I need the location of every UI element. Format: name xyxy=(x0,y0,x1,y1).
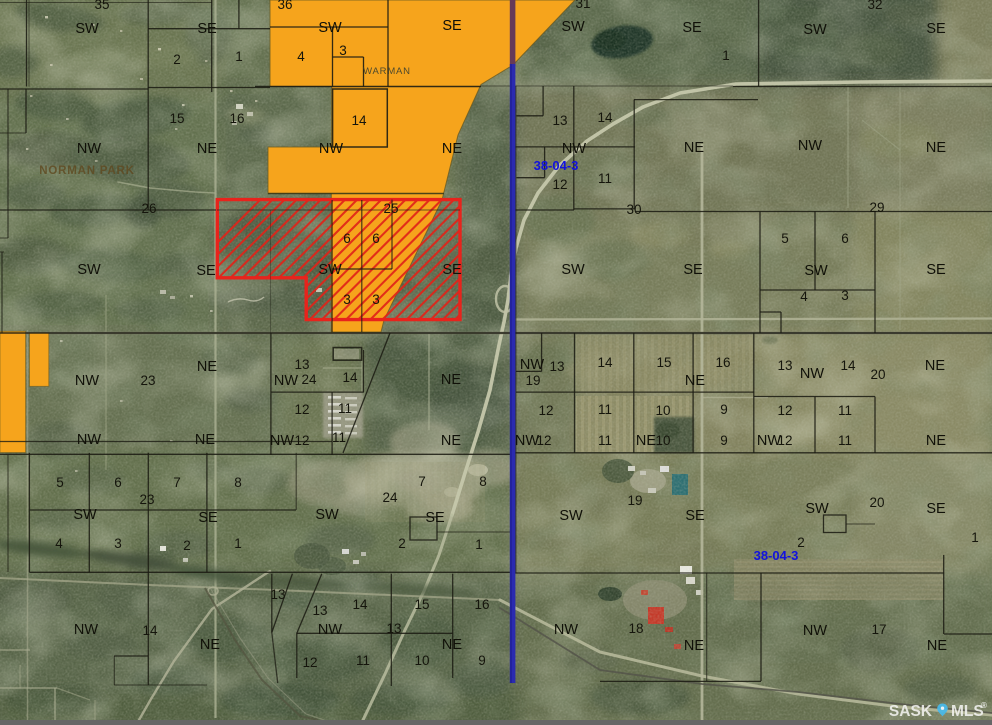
svg-text:NE: NE xyxy=(685,373,705,389)
svg-text:NW: NW xyxy=(270,433,294,449)
svg-text:36: 36 xyxy=(277,0,292,12)
svg-text:SW: SW xyxy=(318,20,342,36)
svg-text:5: 5 xyxy=(781,231,789,246)
svg-text:24: 24 xyxy=(382,490,398,505)
svg-text:6: 6 xyxy=(343,231,351,246)
svg-text:4: 4 xyxy=(800,289,808,304)
svg-text:SE: SE xyxy=(685,508,705,524)
svg-text:6: 6 xyxy=(114,475,122,490)
svg-text:12: 12 xyxy=(294,433,309,448)
svg-text:7: 7 xyxy=(418,474,426,489)
svg-text:1: 1 xyxy=(971,530,979,545)
svg-text:NE: NE xyxy=(441,372,461,388)
svg-text:NE: NE xyxy=(197,359,217,375)
svg-text:WARMAN: WARMAN xyxy=(363,66,411,77)
svg-text:13: 13 xyxy=(777,358,792,373)
svg-text:SE: SE xyxy=(196,263,216,279)
svg-text:6: 6 xyxy=(372,231,380,246)
svg-text:13: 13 xyxy=(270,587,285,602)
svg-text:SW: SW xyxy=(561,19,585,35)
svg-text:38-04-3: 38-04-3 xyxy=(754,548,799,563)
svg-text:11: 11 xyxy=(598,171,612,186)
svg-text:23: 23 xyxy=(140,373,155,388)
svg-text:13: 13 xyxy=(312,603,327,618)
svg-text:18: 18 xyxy=(628,621,643,636)
svg-text:16: 16 xyxy=(474,597,489,612)
svg-text:31: 31 xyxy=(575,0,590,11)
svg-text:12: 12 xyxy=(538,403,553,418)
svg-text:19: 19 xyxy=(525,373,540,388)
svg-text:NE: NE xyxy=(195,432,215,448)
svg-text:14: 14 xyxy=(142,623,158,638)
svg-text:NW: NW xyxy=(803,623,827,639)
svg-text:2: 2 xyxy=(398,536,406,551)
svg-text:SE: SE xyxy=(926,21,946,37)
svg-text:23: 23 xyxy=(139,492,154,507)
svg-text:12: 12 xyxy=(294,402,309,417)
svg-text:29: 29 xyxy=(869,200,884,215)
svg-text:4: 4 xyxy=(55,536,63,551)
svg-text:19: 19 xyxy=(627,493,642,508)
svg-text:12: 12 xyxy=(536,433,551,448)
svg-text:NE: NE xyxy=(684,140,704,156)
svg-text:11: 11 xyxy=(338,401,352,416)
svg-text:14: 14 xyxy=(840,358,856,373)
svg-text:12: 12 xyxy=(777,433,792,448)
svg-text:5: 5 xyxy=(56,475,64,490)
svg-text:NORMAN PARK: NORMAN PARK xyxy=(39,165,134,177)
svg-text:13: 13 xyxy=(549,359,564,374)
svg-text:14: 14 xyxy=(351,113,367,128)
svg-text:NE: NE xyxy=(200,637,220,653)
svg-text:14: 14 xyxy=(597,355,613,370)
svg-text:12: 12 xyxy=(777,403,792,418)
svg-text:NW: NW xyxy=(319,141,343,157)
svg-text:30: 30 xyxy=(626,202,641,217)
svg-text:11: 11 xyxy=(598,433,612,448)
svg-text:2: 2 xyxy=(173,52,181,67)
svg-text:SASK: SASK xyxy=(889,703,933,720)
svg-text:1: 1 xyxy=(235,49,243,64)
svg-text:NW: NW xyxy=(562,141,586,157)
svg-text:1: 1 xyxy=(234,536,242,551)
svg-text:NW: NW xyxy=(74,622,98,638)
svg-text:SE: SE xyxy=(442,18,462,34)
svg-text:4: 4 xyxy=(297,49,305,64)
svg-text:SE: SE xyxy=(198,510,218,526)
svg-text:12: 12 xyxy=(302,655,317,670)
svg-text:SE: SE xyxy=(425,510,445,526)
svg-text:32: 32 xyxy=(867,0,882,12)
svg-text:NW: NW xyxy=(274,373,298,389)
svg-text:NE: NE xyxy=(926,433,946,449)
svg-text:13: 13 xyxy=(294,357,309,372)
svg-text:1: 1 xyxy=(475,537,483,552)
svg-text:NE: NE xyxy=(925,358,945,374)
svg-text:SW: SW xyxy=(561,262,585,278)
svg-text:15: 15 xyxy=(169,111,184,126)
svg-text:16: 16 xyxy=(229,111,244,126)
svg-text:15: 15 xyxy=(414,597,429,612)
svg-text:SW: SW xyxy=(804,263,828,279)
svg-text:NE: NE xyxy=(442,637,462,653)
svg-text:SE: SE xyxy=(926,501,946,517)
svg-text:NW: NW xyxy=(798,138,822,154)
svg-text:12: 12 xyxy=(552,177,567,192)
svg-text:3: 3 xyxy=(372,292,380,307)
svg-text:NW: NW xyxy=(318,622,342,638)
svg-text:11: 11 xyxy=(356,653,370,668)
svg-text:SW: SW xyxy=(315,507,339,523)
svg-text:NW: NW xyxy=(520,357,544,373)
svg-text:16: 16 xyxy=(715,355,730,370)
svg-text:SW: SW xyxy=(73,507,97,523)
svg-text:®: ® xyxy=(981,701,987,710)
svg-text:8: 8 xyxy=(234,475,242,490)
svg-text:10: 10 xyxy=(655,403,670,418)
svg-text:15: 15 xyxy=(656,355,671,370)
svg-text:SE: SE xyxy=(197,21,217,37)
svg-text:9: 9 xyxy=(720,433,728,448)
svg-text:SW: SW xyxy=(75,21,99,37)
svg-text:25: 25 xyxy=(383,201,398,216)
svg-text:NW: NW xyxy=(75,373,99,389)
svg-text:NE: NE xyxy=(926,140,946,156)
svg-text:SW: SW xyxy=(559,508,583,524)
svg-text:3: 3 xyxy=(343,292,351,307)
svg-text:SE: SE xyxy=(442,262,462,278)
svg-text:NW: NW xyxy=(77,141,101,157)
svg-text:38-04-3: 38-04-3 xyxy=(534,158,579,173)
svg-text:NW: NW xyxy=(554,622,578,638)
svg-text:14: 14 xyxy=(352,597,368,612)
svg-text:1: 1 xyxy=(722,48,730,63)
svg-text:17: 17 xyxy=(871,622,886,637)
svg-text:SW: SW xyxy=(318,262,342,278)
svg-text:3: 3 xyxy=(339,43,347,58)
svg-text:11: 11 xyxy=(598,402,612,417)
svg-text:20: 20 xyxy=(869,495,884,510)
svg-text:3: 3 xyxy=(114,536,122,551)
svg-text:11: 11 xyxy=(838,433,852,448)
svg-text:13: 13 xyxy=(552,113,567,128)
svg-text:6: 6 xyxy=(841,231,849,246)
svg-text:10: 10 xyxy=(414,653,429,668)
svg-text:11: 11 xyxy=(332,430,346,445)
svg-text:10: 10 xyxy=(655,433,670,448)
svg-text:11: 11 xyxy=(838,403,852,418)
svg-text:3: 3 xyxy=(841,288,849,303)
svg-text:SW: SW xyxy=(77,262,101,278)
svg-text:24: 24 xyxy=(301,372,317,387)
svg-text:20: 20 xyxy=(870,367,885,382)
svg-text:SW: SW xyxy=(805,501,829,517)
svg-text:SE: SE xyxy=(682,20,702,36)
svg-text:9: 9 xyxy=(478,653,486,668)
svg-text:NE: NE xyxy=(684,638,704,654)
svg-text:8: 8 xyxy=(479,474,487,489)
svg-text:NW: NW xyxy=(77,432,101,448)
svg-text:NE: NE xyxy=(197,141,217,157)
svg-text:SW: SW xyxy=(803,22,827,38)
svg-text:SE: SE xyxy=(926,262,946,278)
svg-text:14: 14 xyxy=(342,370,358,385)
svg-text:NE: NE xyxy=(636,433,656,449)
svg-text:SE: SE xyxy=(683,262,703,278)
svg-text:14: 14 xyxy=(597,110,613,125)
svg-text:NE: NE xyxy=(927,638,947,654)
svg-text:NE: NE xyxy=(442,141,462,157)
svg-text:9: 9 xyxy=(720,402,728,417)
svg-text:NW: NW xyxy=(800,366,824,382)
svg-text:7: 7 xyxy=(173,475,181,490)
svg-text:26: 26 xyxy=(141,201,156,216)
svg-text:13: 13 xyxy=(386,621,401,636)
svg-text:MLS: MLS xyxy=(951,703,984,720)
svg-text:NE: NE xyxy=(441,433,461,449)
svg-text:35: 35 xyxy=(94,0,109,12)
svg-text:2: 2 xyxy=(183,538,191,553)
